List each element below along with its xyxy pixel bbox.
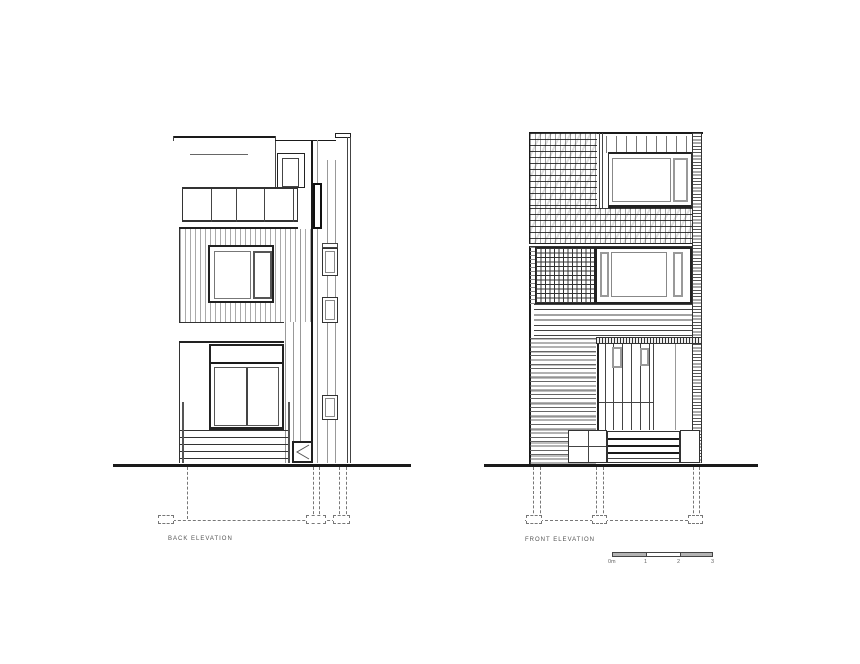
- front-window-sidelight: [673, 158, 688, 202]
- front-privacy-screen-grid: [535, 247, 595, 304]
- back-rail-post-left: [182, 402, 184, 463]
- back-foundation-line: [319, 467, 320, 519]
- front-stair-tread-line: [569, 446, 606, 447]
- scale-label-3: 3: [711, 559, 714, 565]
- back-deck-guard-rail: [182, 187, 298, 222]
- back-lower-siding: [180, 430, 288, 463]
- back-foundation-line: [339, 467, 340, 519]
- back-ground-line: [113, 464, 411, 467]
- front-foundation-line: [603, 467, 604, 518]
- front-footing: [592, 515, 607, 524]
- back-window-sash-right: [253, 251, 272, 299]
- back-window-mullion: [246, 368, 248, 425]
- back-roof-edge: [173, 136, 276, 138]
- front-window-sidelight-right: [673, 252, 683, 297]
- front-entry-stair-box: [568, 430, 607, 463]
- back-side-bay-window-pane: [325, 398, 335, 417]
- front-third-floor-window: [608, 152, 692, 208]
- back-third-floor-window: [208, 245, 274, 303]
- front-window-sidelight-left: [600, 252, 609, 297]
- back-foundation-line: [346, 467, 347, 519]
- back-rail-divider: [211, 189, 212, 222]
- front-bench-slat: [608, 458, 679, 459]
- back-foundation-line: [187, 467, 188, 519]
- front-porch: [654, 344, 692, 430]
- back-ground-floor-window: [209, 344, 284, 430]
- back-window-pane-left: [214, 251, 251, 299]
- front-entry-board-line: [649, 344, 650, 430]
- front-entry-slot-window: [640, 348, 649, 366]
- back-elevation-title: BACK ELEVATION: [168, 536, 233, 542]
- front-window-main-pane: [612, 158, 671, 202]
- back-transom-bar: [211, 362, 282, 364]
- front-entry-mid-rail: [599, 402, 655, 403]
- back-parapet-cap: [335, 133, 351, 138]
- front-footing: [688, 515, 703, 524]
- front-siding-joint-line: [599, 133, 600, 208]
- back-side-bay-window: [322, 248, 338, 276]
- front-window-main-pane: [611, 252, 667, 297]
- back-bulkhead-roof-edge: [275, 140, 336, 141]
- back-deck-door: [277, 153, 305, 188]
- back-footing: [306, 515, 326, 524]
- back-side-bay-window-pane: [325, 300, 335, 320]
- architectural-drawing-sheet: BACK ELEVATION: [0, 0, 860, 664]
- front-foundation-line: [699, 467, 700, 518]
- scale-bar: [612, 552, 713, 557]
- front-bench-slat: [608, 445, 679, 447]
- back-side-wall-edge: [347, 137, 348, 463]
- front-porch-corner-line: [675, 344, 676, 430]
- front-bench-slat: [608, 452, 679, 454]
- door-swing-icon: [294, 443, 311, 461]
- back-deck-fascia: [179, 222, 298, 229]
- front-entry-board-line: [622, 344, 623, 430]
- front-entry-slot-window: [612, 347, 622, 368]
- back-rail-divider: [236, 189, 237, 222]
- front-soffit-band: [596, 337, 702, 344]
- scale-label-1: 1: [644, 559, 647, 565]
- front-bench-slat: [608, 438, 679, 440]
- front-foundation-line: [693, 467, 694, 518]
- front-footing-line: [525, 520, 703, 521]
- back-footing: [333, 515, 350, 524]
- back-deck-door-panel: [282, 158, 299, 187]
- back-rail-post-right: [288, 402, 290, 463]
- front-shingle-band: [530, 208, 692, 244]
- back-side-bay-window: [322, 395, 338, 420]
- back-side-wall-edge: [350, 137, 351, 463]
- front-foundation-line: [540, 467, 541, 518]
- front-side-wall-return: [692, 133, 702, 463]
- front-vertical-board-siding: [597, 136, 692, 153]
- front-siding-joint-line: [602, 133, 603, 208]
- back-window-inner-frame: [214, 367, 279, 426]
- back-footing: [158, 515, 174, 524]
- front-shingle-panel-upper: [530, 133, 597, 209]
- back-rail-divider: [293, 189, 294, 222]
- front-entry-board-line: [631, 344, 632, 430]
- front-entry-screen: [597, 344, 653, 430]
- back-pilaster-line: [300, 229, 301, 463]
- front-ground-line: [484, 464, 758, 467]
- back-side-bay-window: [322, 297, 338, 323]
- front-siding-band: [534, 304, 692, 338]
- front-entry-board-line: [605, 344, 606, 430]
- front-second-floor-window: [595, 247, 692, 304]
- back-deck-rail-line: [190, 154, 248, 155]
- back-floor-band: [179, 322, 284, 343]
- back-rail-divider: [264, 189, 265, 222]
- back-roof-edge-tick: [173, 136, 174, 141]
- back-side-bay-window-pane: [325, 251, 335, 273]
- front-foundation-line: [596, 467, 597, 518]
- front-planter-bench: [607, 431, 680, 463]
- back-foundation-line: [313, 467, 314, 519]
- front-elevation-title: FRONT ELEVATION: [525, 537, 595, 543]
- back-stair-column: [313, 183, 322, 229]
- scale-bar-segment-filled: [613, 553, 647, 556]
- front-entry-pillar: [680, 430, 700, 463]
- scale-label-2: 2: [677, 559, 680, 565]
- front-foundation-line: [533, 467, 534, 518]
- back-roof-step: [275, 136, 276, 187]
- scale-label-0m: 0m: [608, 559, 616, 565]
- front-footing: [526, 515, 542, 524]
- back-access-hatch: [292, 441, 313, 463]
- scale-bar-segment-filled: [680, 553, 713, 556]
